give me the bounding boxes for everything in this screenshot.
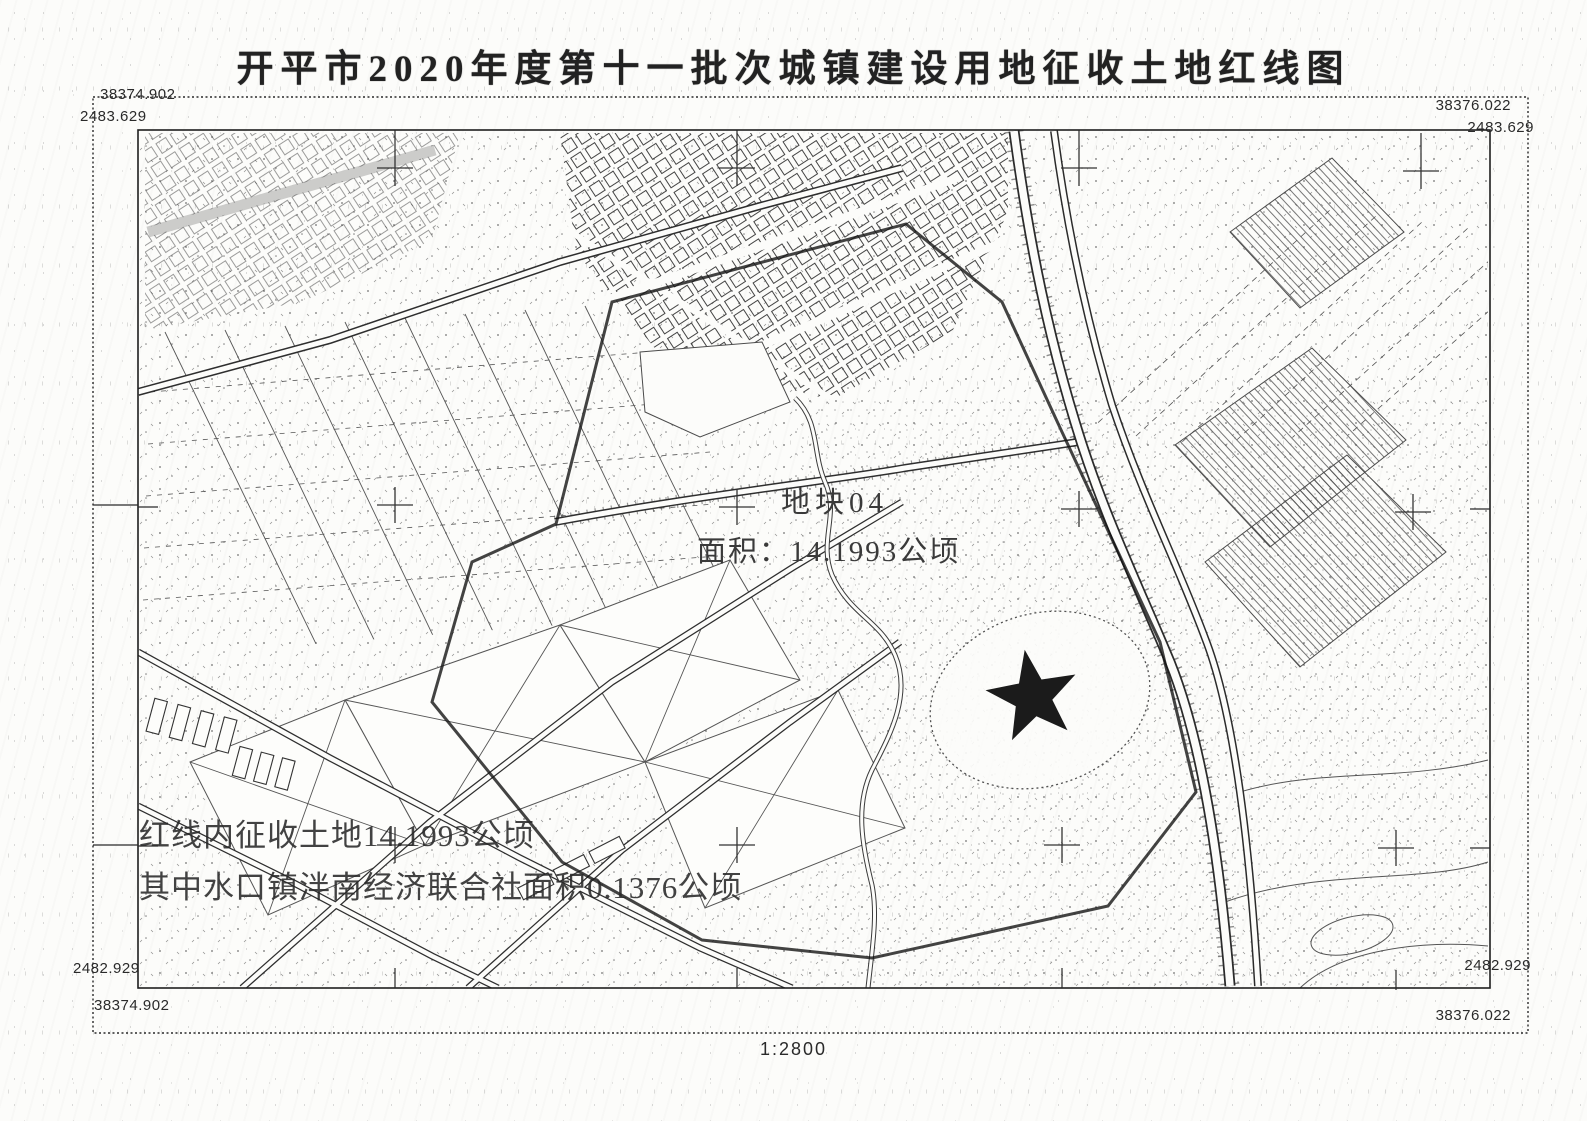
coord-top-right-northing: 2483.629: [1467, 119, 1534, 136]
coord-bottom-left-northing: 2482.929: [73, 960, 140, 977]
coord-top-right-easting: 38376.022: [1436, 97, 1511, 114]
map-scale-label: 1:2800: [760, 1039, 827, 1060]
coord-top-left-easting: 38374.902: [100, 86, 175, 103]
parcel-id-label: 地块04: [781, 479, 888, 521]
coord-bottom-right-easting: 38376.022: [1436, 1007, 1511, 1024]
cooperative-area-note: 其中水口镇泮南经济联合社面积0.1376公顷: [139, 862, 742, 907]
parcel-area-label: 面积：14.1993公顷: [697, 528, 960, 570]
coord-top-left-northing: 2483.629: [80, 108, 147, 125]
coord-bottom-left-easting: 38374.902: [94, 997, 169, 1014]
map-title: 开平市2020年度第十一批次城镇建设用地征收土地红线图: [237, 38, 1351, 92]
scanned-map-sheet: 开平市2020年度第十一批次城镇建设用地征收土地红线图 38374.902 24…: [0, 0, 1587, 1121]
redline-area-note: 红线内征收土地14.1993公顷: [139, 810, 535, 855]
coord-bottom-right-northing: 2482.929: [1464, 957, 1531, 974]
